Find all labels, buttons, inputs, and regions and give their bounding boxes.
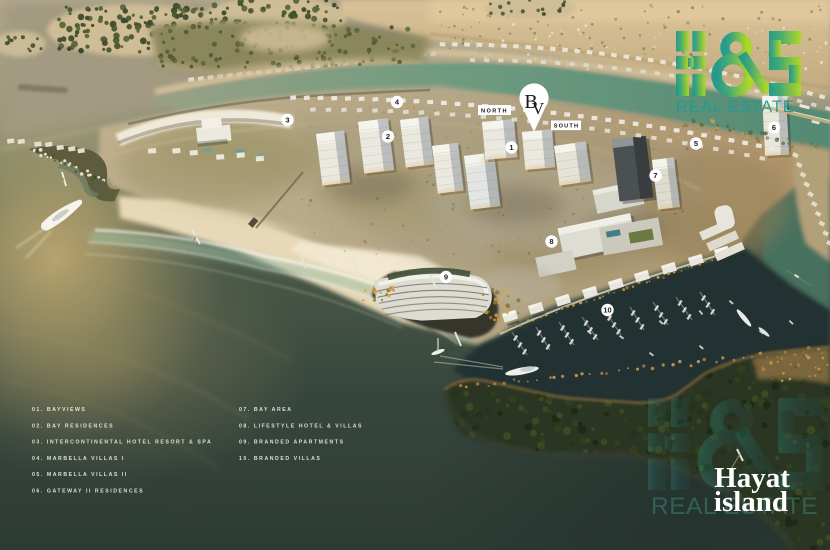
svg-text:8: 8 xyxy=(549,237,553,246)
svg-text:island: island xyxy=(714,486,788,518)
svg-text:01. BAYVIEWS: 01. BAYVIEWS xyxy=(32,407,86,413)
svg-text:10. BRANDED VILLAS: 10. BRANDED VILLAS xyxy=(239,456,321,462)
svg-text:9: 9 xyxy=(444,273,448,282)
svg-text:04. MARBELLA VILLAS I: 04. MARBELLA VILLAS I xyxy=(32,456,125,462)
svg-text:10: 10 xyxy=(603,306,611,315)
svg-text:2: 2 xyxy=(386,132,390,141)
svg-text:V: V xyxy=(532,99,545,118)
svg-text:3: 3 xyxy=(285,116,289,125)
svg-text:6: 6 xyxy=(772,123,776,132)
svg-text:05. MARBELLA VILLAS II: 05. MARBELLA VILLAS II xyxy=(32,472,128,478)
svg-text:7: 7 xyxy=(653,171,657,180)
svg-text:09. BRANDED APARTMENTS: 09. BRANDED APARTMENTS xyxy=(239,440,345,446)
svg-text:SOUTH: SOUTH xyxy=(554,124,580,130)
svg-text:02. BAY RESIDENCES: 02. BAY RESIDENCES xyxy=(32,423,114,429)
svg-text:1: 1 xyxy=(509,143,513,152)
svg-text:03. INTERCONTINENTAL HOTEL RES: 03. INTERCONTINENTAL HOTEL RESORT & SPA xyxy=(32,440,212,446)
svg-text:07. BAY AREA: 07. BAY AREA xyxy=(239,407,293,413)
svg-text:08. LIFESTYLE HOTEL & VILLAS: 08. LIFESTYLE HOTEL & VILLAS xyxy=(239,423,363,429)
svg-text:NORTH: NORTH xyxy=(481,108,508,114)
svg-text:5: 5 xyxy=(694,139,698,148)
svg-text:06. GATEWAY II RESIDENCES: 06. GATEWAY II RESIDENCES xyxy=(32,489,144,495)
svg-text:REAL ESTATE: REAL ESTATE xyxy=(676,98,795,116)
